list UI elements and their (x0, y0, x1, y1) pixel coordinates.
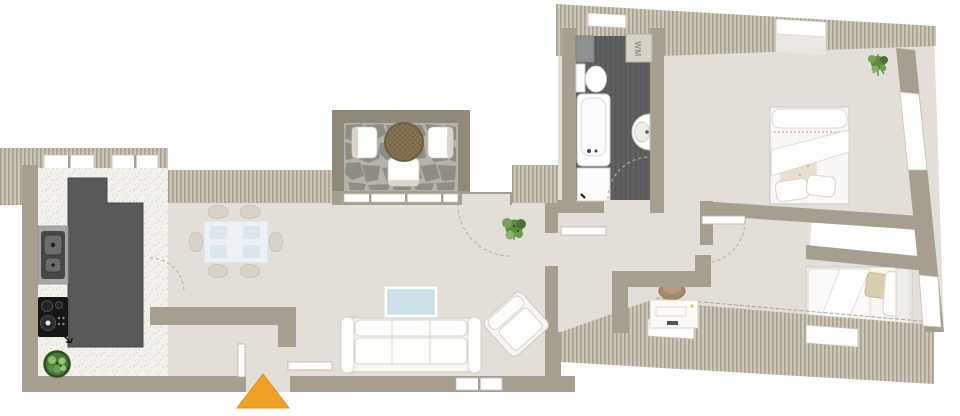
floor-plan: WM (0, 0, 960, 416)
entrance-door-leaf (288, 362, 332, 370)
wall-segment (332, 110, 470, 123)
wall-segment (562, 28, 576, 203)
window-mullion (441, 194, 444, 202)
tv-screen (388, 290, 434, 314)
kitchen-counter (68, 178, 143, 347)
dining-chair (208, 206, 228, 219)
kitchen-plant (45, 352, 70, 377)
dining-chair (190, 232, 203, 252)
burner-icon (42, 301, 53, 312)
bedroom-window (776, 19, 826, 37)
placemat (243, 245, 260, 258)
bathroom-door-opening (604, 200, 650, 213)
terrace-chair-back (388, 180, 419, 186)
roof-eaves-band (168, 170, 332, 205)
faucet-icon (595, 150, 598, 153)
sofa-armrest (341, 317, 354, 373)
wall-segment (332, 110, 344, 205)
bathtub-basin (581, 98, 606, 156)
bathroom-shelf (576, 36, 594, 62)
wall-segment (695, 255, 711, 287)
placemat (243, 226, 260, 239)
knee-wall-window (806, 325, 858, 347)
sofa-seat (355, 338, 467, 364)
toilet (586, 66, 607, 92)
headboard (896, 268, 910, 326)
terrace-chair-back (447, 127, 453, 158)
pillow (806, 175, 836, 198)
terrace-table (385, 123, 423, 161)
roof-eaves-band (512, 165, 558, 205)
faucet-icon (51, 243, 55, 247)
bathroom: WM (562, 28, 664, 213)
desk-lamp-icon (690, 304, 693, 307)
faucet-icon (645, 130, 648, 133)
knob-icon (62, 323, 64, 325)
knob-icon (58, 317, 60, 319)
faucet-icon (51, 263, 55, 267)
dining-chair (270, 232, 283, 252)
left-wing (0, 110, 575, 392)
double-bed (770, 107, 849, 204)
dining-chair (208, 265, 228, 278)
knob-icon (58, 323, 60, 325)
knob-icon (62, 317, 64, 319)
burner-center (46, 321, 51, 326)
terrace-window-band (344, 194, 458, 202)
terrace (332, 110, 470, 205)
dining-chair (240, 206, 260, 219)
sofa-back-cushions (355, 320, 467, 336)
hall-door-leaf (561, 227, 606, 235)
placemat (210, 226, 227, 239)
floor-plan-canvas: WM (0, 0, 960, 416)
window-mullion (369, 194, 372, 202)
wall-segment (278, 325, 296, 347)
wall-segment (22, 165, 38, 392)
washing-machine-label: WM (633, 41, 642, 56)
terrace-chair-back (352, 127, 358, 158)
placemat (210, 245, 227, 258)
terrace-door-opening (462, 194, 510, 205)
desk-item (667, 321, 678, 325)
right-wing: WM (556, 4, 944, 384)
pillow (775, 178, 809, 202)
bathroom-window (588, 13, 626, 28)
wall-segment (150, 307, 296, 325)
dining-chair (240, 265, 260, 278)
pillow-band (772, 109, 847, 128)
bedroom-window (919, 275, 941, 327)
wall-segment (612, 271, 628, 333)
toilet-tank (576, 64, 585, 92)
sofa (341, 317, 481, 373)
hall-door-leaf (238, 344, 245, 377)
bedroom-door-leaf (702, 216, 745, 224)
window-mullion (405, 194, 408, 202)
wall-segment (458, 110, 470, 205)
faucet-icon (587, 149, 591, 153)
burner-icon (56, 302, 63, 309)
window-sill (776, 34, 826, 55)
window-mullion (478, 378, 481, 390)
sofa-armrest (468, 317, 481, 373)
